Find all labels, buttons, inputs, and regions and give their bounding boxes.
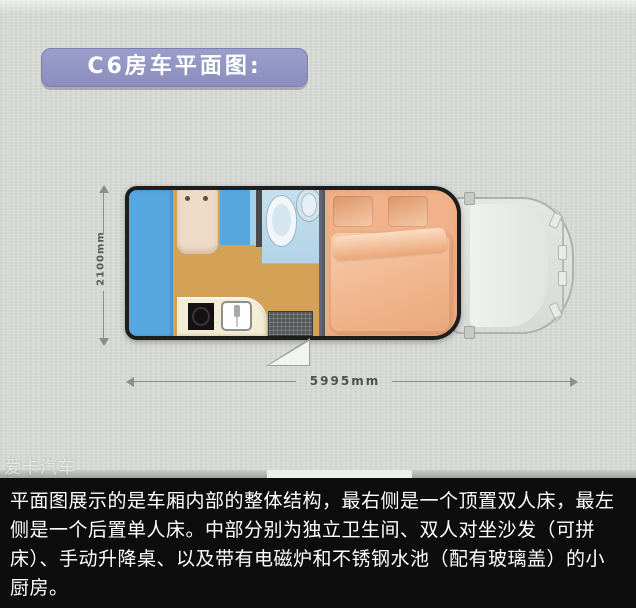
screenshot-root: C6房车平面图: — [0, 0, 636, 608]
arrow-down-icon — [99, 338, 109, 346]
dinette-seat — [177, 190, 218, 254]
height-dimension-line — [103, 291, 104, 340]
caption-text: 平面图展示的是车厢内部的整体结构，最右侧是一个顶置双人床，最左侧是一个后置单人床… — [0, 478, 636, 603]
cab-hood — [470, 204, 548, 327]
entry-step — [268, 311, 313, 336]
side-mirror-icon — [464, 326, 475, 339]
height-dimension-line — [103, 189, 104, 233]
arrow-right-icon — [570, 377, 578, 387]
door-swing-icon — [266, 338, 310, 366]
page-title: C6房车平面图: — [87, 54, 261, 79]
photo-area: C6房车平面图: — [0, 0, 636, 478]
washbasin-bowl — [301, 193, 317, 217]
overcab-double-bed — [325, 190, 457, 336]
bathroom — [262, 190, 319, 264]
title-badge: C6房车平面图: — [41, 48, 308, 87]
width-dimension-label: 5995mm — [300, 374, 390, 388]
toilet-icon — [266, 195, 297, 247]
toilet-bowl — [272, 204, 291, 236]
side-mirror-icon — [464, 192, 475, 205]
stove-burner — [192, 307, 210, 326]
floorplan-body — [125, 186, 461, 340]
blanket-fold — [332, 227, 448, 261]
photo-bottom-edge-highlight — [267, 470, 412, 478]
height-dimension-label: 2100mm — [96, 228, 107, 290]
stove-icon — [188, 303, 214, 330]
pillow-icon — [333, 196, 373, 227]
rear-single-bed — [129, 190, 173, 336]
headlight-icon — [558, 245, 567, 260]
watermark: 爱卡汽车 — [4, 453, 76, 478]
kitchen-counter — [177, 297, 267, 336]
kitchen-sink-icon — [221, 301, 252, 331]
headlight-icon — [558, 271, 567, 286]
arrow-left-icon — [126, 377, 134, 387]
sofa-seat — [220, 190, 250, 245]
width-dimension-line — [392, 381, 576, 382]
caption-panel: 平面图展示的是车厢内部的整体结构，最右侧是一个顶置双人床，最左侧是一个后置单人床… — [0, 478, 636, 608]
width-dimension-line — [130, 381, 296, 382]
truck-cab-outline — [452, 197, 574, 334]
arrow-up-icon — [99, 185, 109, 193]
mattress — [329, 231, 451, 333]
pillow-icon — [388, 196, 428, 227]
seat-post-icon — [185, 196, 190, 201]
seat-post-icon — [203, 196, 208, 201]
